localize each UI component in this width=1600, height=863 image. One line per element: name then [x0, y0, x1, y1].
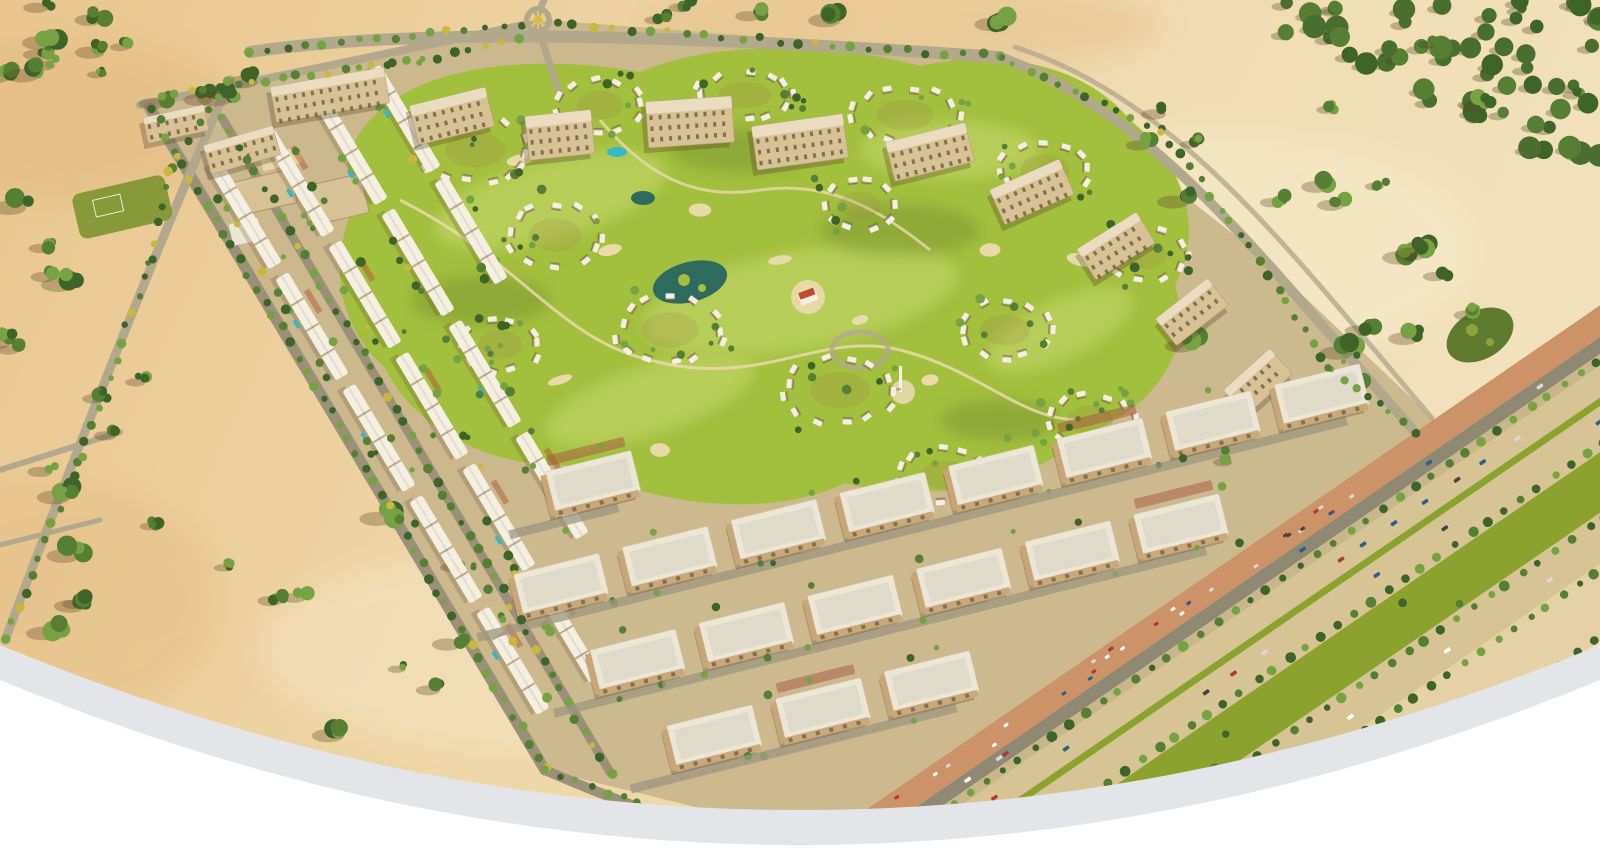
villa-tree — [956, 318, 965, 327]
villa-tree — [537, 185, 547, 195]
villa-tree — [876, 378, 883, 385]
roadside-tree — [214, 216, 220, 222]
car — [1168, 836, 1176, 843]
roadside-tree — [194, 187, 202, 195]
villa-tree — [965, 101, 971, 107]
villa-tree — [833, 228, 840, 235]
roadside-tree — [300, 250, 309, 259]
shrub — [110, 426, 120, 436]
window — [576, 146, 579, 151]
roadside-tree — [424, 574, 434, 584]
roadside-tree — [420, 558, 429, 567]
villa-tree — [517, 244, 523, 250]
villa-tree — [625, 102, 631, 108]
roadside-tree — [1263, 271, 1273, 281]
villa-tree — [497, 321, 507, 331]
window — [705, 134, 708, 139]
villa-tree — [981, 332, 988, 339]
window — [687, 135, 690, 140]
shrub — [1400, 323, 1416, 339]
roadside-tree — [499, 584, 509, 594]
roadside-tree — [883, 45, 892, 54]
shrub — [51, 615, 68, 632]
highway-tree — [1136, 830, 1146, 840]
roadside-tree — [337, 422, 344, 429]
roadside-tree — [523, 629, 529, 635]
roadside-tree — [465, 47, 472, 54]
window — [660, 137, 663, 142]
roadside-tree — [1204, 192, 1214, 202]
villa — [1037, 140, 1048, 148]
window — [530, 140, 533, 145]
shrub — [140, 374, 149, 383]
villa — [780, 391, 789, 402]
roadside-tree — [795, 847, 804, 856]
roadside-tree — [999, 54, 1005, 60]
roadside-tree — [582, 728, 589, 735]
villa — [612, 335, 621, 346]
roadside-tree — [940, 50, 949, 59]
roadside-tree — [70, 471, 79, 480]
roadside-tree — [267, 311, 275, 319]
highway-tree — [1391, 769, 1404, 782]
roadside-tree — [297, 356, 303, 362]
roadside-tree — [1310, 339, 1319, 348]
villa — [1048, 324, 1056, 334]
roadside-tree — [244, 48, 254, 58]
shrub — [1323, 101, 1334, 112]
roadside-tree — [1199, 176, 1205, 182]
roadside-tree — [1281, 297, 1289, 305]
villa-tree — [501, 237, 507, 243]
forest-tree — [1550, 99, 1571, 120]
roadside-tree — [368, 61, 375, 68]
roadside-tree — [1324, 364, 1332, 372]
highway-tree — [879, 844, 893, 858]
roadside-tree — [411, 547, 417, 553]
window — [677, 124, 680, 129]
roadside-tree — [96, 405, 103, 412]
roadside-tree — [589, 742, 595, 748]
roadside-tree — [482, 25, 488, 31]
window — [813, 153, 817, 158]
roadside-tree — [253, 286, 261, 294]
villa-tree — [837, 202, 846, 211]
roadside-tree — [1028, 68, 1036, 76]
window — [650, 126, 653, 131]
forest-tree — [1427, 36, 1438, 47]
roadside-tree — [442, 26, 451, 35]
roadside-tree — [1186, 162, 1194, 170]
roadside-tree — [121, 321, 127, 327]
roadside-tree — [226, 128, 232, 134]
roadside-tree — [621, 793, 628, 800]
roadside-tree — [718, 35, 724, 41]
highway-tree — [1260, 792, 1273, 805]
window — [776, 147, 780, 152]
highway-tree — [1124, 838, 1135, 849]
window — [838, 138, 842, 143]
villa-tree — [677, 351, 685, 359]
aerial-masterplan-render — [0, 0, 1600, 863]
villa — [936, 497, 947, 505]
highway-tree — [1196, 838, 1207, 849]
window — [759, 161, 763, 166]
roadside-tree — [223, 76, 233, 86]
window — [686, 124, 689, 129]
forest-tree — [1524, 76, 1542, 94]
roadside-tree — [433, 478, 443, 488]
villa-tree — [471, 136, 477, 142]
roadside-tree — [216, 83, 224, 91]
window — [783, 135, 787, 140]
roadside-tree — [378, 491, 387, 500]
forest-tree — [1330, 27, 1350, 47]
shrub — [98, 41, 108, 51]
window — [659, 126, 662, 131]
villa-tree — [594, 218, 600, 224]
roadside-tree — [426, 28, 435, 37]
window — [539, 139, 542, 144]
shrub — [661, 12, 671, 22]
villa-tree — [1121, 389, 1129, 397]
roadside-tree — [226, 240, 235, 249]
villa-tree — [1122, 284, 1128, 290]
ornament-ray — [537, 24, 539, 29]
forest-tree — [1355, 52, 1378, 75]
roadside-tree — [628, 27, 637, 36]
villa-facade — [843, 418, 852, 420]
roadside-tree — [458, 520, 464, 526]
roadside-tree — [549, 671, 556, 678]
roadside-tree — [249, 166, 258, 175]
roadside-tree — [57, 506, 64, 513]
shrub — [35, 31, 51, 47]
shrub — [821, 7, 835, 21]
highway-tree — [1178, 850, 1189, 861]
window — [721, 110, 724, 115]
roadside-tree — [170, 89, 179, 98]
villa — [665, 293, 675, 301]
roadside-tree — [416, 447, 423, 454]
ornament-ray — [529, 19, 534, 21]
roadside-tree — [284, 44, 292, 52]
roadside-tree — [491, 573, 497, 579]
roadside-tree — [270, 194, 279, 203]
roadside-tree — [447, 612, 456, 621]
villa-tree — [792, 93, 801, 102]
roadside-tree — [845, 41, 855, 51]
roadside-tree — [338, 39, 345, 46]
villa — [597, 232, 605, 243]
window — [567, 147, 570, 152]
shrub — [1314, 171, 1332, 189]
roadside-tree — [114, 357, 121, 364]
window — [694, 112, 697, 117]
villa-tree — [608, 131, 616, 139]
roadside-tree — [147, 105, 155, 113]
roadside-tree — [218, 114, 224, 120]
highway-tree — [1438, 738, 1450, 750]
villa — [890, 199, 898, 210]
roadside-tree — [177, 159, 186, 168]
lake-island — [1466, 324, 1478, 336]
shrub — [1331, 197, 1341, 207]
villa-tree — [650, 347, 655, 352]
roadside-tree — [1302, 326, 1308, 332]
window — [695, 123, 698, 128]
shrub — [293, 588, 303, 598]
villa-tree — [842, 385, 852, 395]
roadside-tree — [367, 363, 374, 370]
canal-tree — [1018, 852, 1036, 863]
roadside-tree — [423, 464, 433, 474]
roadside-tree — [164, 167, 173, 176]
roadside-tree — [236, 254, 245, 263]
pond — [607, 147, 627, 157]
villa-tree — [1040, 439, 1047, 446]
villa-tree — [603, 79, 613, 89]
roadside-tree — [525, 740, 534, 749]
shrub — [12, 338, 26, 352]
roadside-tree — [351, 450, 358, 457]
shrub — [1467, 303, 1476, 312]
window — [801, 133, 805, 138]
roadside-tree — [664, 27, 670, 33]
villa-tree — [517, 320, 523, 326]
window — [565, 125, 568, 130]
roadside-tree — [1276, 286, 1285, 295]
window — [839, 149, 843, 154]
forest-tree — [1278, 24, 1294, 40]
window — [756, 139, 760, 144]
villa — [843, 417, 853, 425]
roadside-tree — [326, 298, 332, 304]
villa — [594, 128, 604, 136]
window — [574, 124, 577, 129]
roadside-tree — [1144, 123, 1150, 129]
roadside-tree — [353, 339, 359, 345]
villa-tree — [1027, 320, 1034, 327]
roadside-tree — [468, 640, 477, 649]
villa-tree — [1040, 340, 1048, 348]
villa-facade — [1049, 325, 1051, 334]
shrub — [331, 719, 348, 736]
window — [547, 127, 550, 132]
roadside-tree — [506, 604, 512, 610]
highway-tree — [989, 855, 1001, 863]
roadside-tree — [519, 721, 528, 730]
villa-tree — [515, 168, 523, 176]
window — [758, 150, 762, 155]
forest-tree — [1413, 78, 1435, 100]
roadside-tree — [185, 176, 193, 184]
villa-court — [876, 100, 933, 131]
villa-tree — [998, 173, 1004, 179]
roadside-tree — [263, 299, 271, 307]
roadside-tree — [1055, 81, 1061, 87]
roadside-tree — [321, 396, 327, 402]
shrub — [28, 57, 43, 72]
roadside-tree — [163, 184, 169, 190]
shrub — [1572, 87, 1582, 97]
car — [846, 857, 854, 863]
roadside-tree — [310, 269, 319, 278]
window — [558, 148, 561, 153]
roadside-tree — [474, 544, 484, 554]
highway-tree — [1423, 748, 1435, 760]
forest-tree — [1498, 76, 1517, 95]
forest-tree — [1518, 136, 1541, 159]
roadside-tree — [309, 381, 319, 391]
window — [712, 111, 715, 116]
villa-tree — [1185, 254, 1192, 261]
roadside-tree — [361, 348, 369, 356]
roadside-tree — [466, 531, 476, 541]
villa — [847, 177, 858, 186]
roadside-tree — [264, 48, 270, 54]
window — [795, 156, 799, 161]
shrub — [148, 521, 156, 529]
roadside-tree — [204, 201, 213, 210]
villa-tree — [728, 345, 734, 351]
shrub — [1185, 186, 1195, 196]
window — [786, 157, 790, 162]
roadside-tree — [501, 697, 507, 703]
highway-tree — [1102, 850, 1117, 863]
pond-island — [698, 284, 706, 292]
window — [685, 113, 688, 118]
highway-tree — [1408, 759, 1420, 771]
forest-tree — [1521, 61, 1533, 73]
window — [765, 138, 769, 143]
roadside-tree — [1364, 393, 1372, 401]
roadside-tree — [555, 684, 562, 691]
villa-facade — [594, 128, 603, 130]
roadside-tree — [127, 308, 135, 316]
shrub — [5, 188, 25, 208]
roadside-tree — [99, 389, 106, 396]
shrub — [1372, 180, 1382, 190]
roadside-tree — [700, 30, 708, 38]
roadside-tree — [1256, 256, 1265, 265]
villa-tree — [860, 125, 870, 135]
villa-tree — [816, 184, 824, 192]
forest-tree — [1517, 3, 1527, 13]
parked-car — [830, 848, 836, 853]
shrub — [96, 10, 113, 27]
roadside-tree — [356, 64, 362, 70]
roadside-tree — [1157, 128, 1164, 135]
villa — [487, 316, 497, 324]
roadside-tree — [1377, 400, 1384, 407]
roadside-tree — [324, 71, 331, 78]
lake-island — [1486, 338, 1494, 346]
forest-tree — [1381, 40, 1397, 56]
roadside-tree — [1126, 114, 1134, 122]
roadside-tree — [489, 683, 498, 692]
roadside-tree — [419, 56, 425, 62]
window — [529, 129, 532, 134]
forest-tree — [1482, 54, 1503, 75]
roadside-tree — [557, 774, 564, 781]
shrub — [226, 87, 237, 98]
shrub — [755, 2, 769, 16]
pond — [631, 191, 655, 205]
villa-tree — [1077, 194, 1084, 201]
shrub — [99, 70, 106, 77]
forest-tree — [1495, 37, 1514, 56]
villa-court — [980, 315, 1030, 346]
roadside-tree — [739, 36, 747, 44]
villa-tree — [892, 365, 898, 371]
highway-tree — [865, 854, 878, 863]
car — [1205, 811, 1213, 818]
highway-tree — [1001, 846, 1013, 858]
shrub — [1442, 270, 1453, 281]
roadside-tree — [572, 777, 578, 783]
roadside-tree — [108, 375, 114, 381]
window — [714, 133, 717, 138]
highway-tree — [1153, 817, 1165, 829]
forest-tree — [1548, 78, 1565, 95]
villa-tree — [532, 234, 539, 241]
roadside-tree — [1412, 429, 1421, 438]
roadside-tree — [554, 19, 562, 27]
roadside-tree — [215, 93, 222, 100]
window — [584, 134, 587, 139]
window — [540, 150, 543, 155]
roadside-tree — [279, 322, 288, 331]
shrub — [46, 1, 55, 10]
roadside-tree — [683, 30, 691, 38]
window — [549, 149, 552, 154]
roadside-tree — [921, 50, 929, 58]
roadside-tree — [646, 27, 656, 37]
roadside-tree — [811, 852, 820, 861]
highway-tree — [1372, 784, 1383, 795]
villa-tree — [1184, 266, 1193, 275]
shrub — [7, 329, 18, 340]
roadside-tree — [174, 153, 181, 160]
window — [827, 129, 831, 134]
roadside-tree — [374, 377, 383, 386]
window — [802, 143, 806, 148]
villa — [1002, 355, 1012, 363]
villa-facade — [666, 298, 675, 300]
window — [831, 151, 835, 156]
shrub — [51, 462, 59, 470]
highway-tree — [1327, 816, 1336, 825]
shrub — [1156, 102, 1166, 112]
villa-tree — [831, 216, 840, 225]
window — [585, 145, 588, 150]
window — [774, 136, 778, 141]
render-canvas — [0, 0, 1600, 863]
shrub — [223, 558, 232, 567]
roadside-tree — [1072, 88, 1079, 95]
roadside-tree — [157, 115, 166, 124]
villa-court — [810, 372, 871, 408]
window — [556, 126, 559, 131]
roadside-tree — [1385, 409, 1391, 415]
shrub — [78, 589, 93, 604]
villa-tree — [808, 373, 816, 381]
roadside-tree — [184, 137, 192, 145]
forest-tree — [1482, 8, 1497, 23]
villa-tree — [529, 242, 536, 249]
apartment-block — [641, 96, 735, 153]
